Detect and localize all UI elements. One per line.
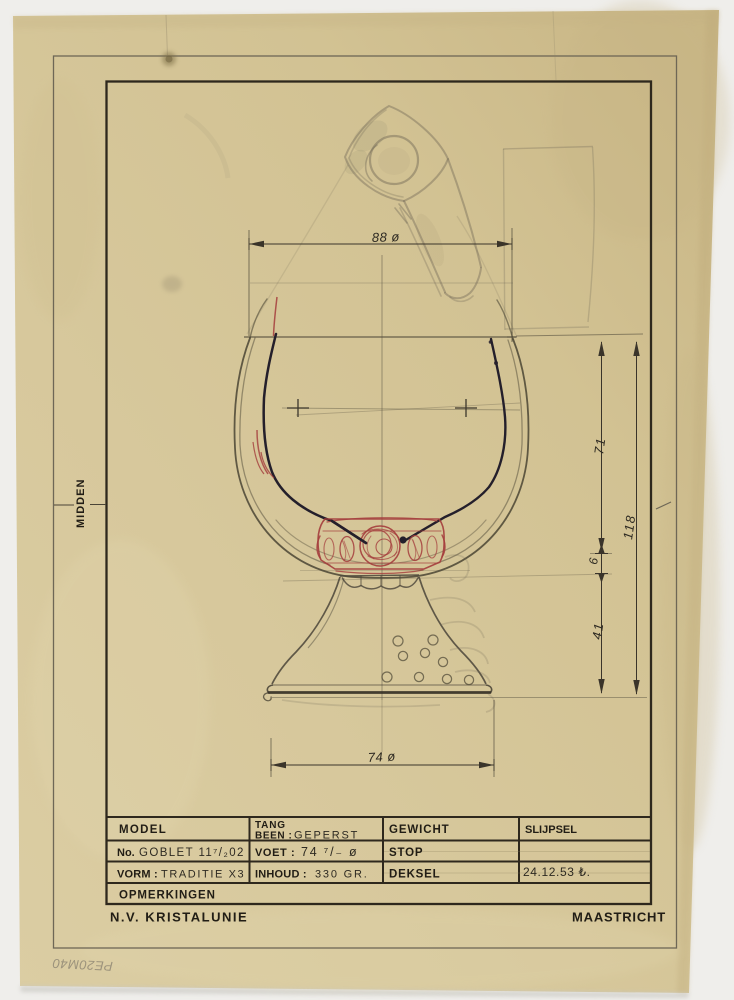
svg-text:GEPERST: GEPERST [294,830,359,842]
svg-text:N.V. KRISTALUNIE: N.V. KRISTALUNIE [110,910,248,925]
svg-text:OPMERKINGEN: OPMERKINGEN [119,890,216,902]
svg-text:VORM :: VORM : [117,869,158,881]
svg-text:88 ø: 88 ø [372,229,401,245]
svg-text:24.12.53 ₺.: 24.12.53 ₺. [523,865,591,879]
svg-text:STOP: STOP [389,847,423,859]
svg-text:BEEN :: BEEN : [255,831,293,842]
svg-text:41: 41 [589,621,606,640]
svg-text:PE20M40: PE20M40 [52,956,114,974]
svg-text:SLIJPSEL: SLIJPSEL [525,824,577,836]
svg-text:71: 71 [591,436,608,455]
svg-text:TRADITIE X3: TRADITIE X3 [161,869,245,881]
svg-text:VOET :: VOET : [255,847,295,859]
svg-text:74 ø: 74 ø [367,749,396,765]
svg-text:74 ⁷/₋ ø: 74 ⁷/₋ ø [301,845,358,859]
svg-text:330 GR.: 330 GR. [315,869,369,881]
svg-text:GEWICHT: GEWICHT [389,824,450,836]
svg-text:MODEL: MODEL [119,824,167,836]
svg-text:MIDDEN: MIDDEN [75,479,87,528]
svg-text:DEKSEL: DEKSEL [389,869,440,881]
svg-text:GOBLET 11⁷/₂02: GOBLET 11⁷/₂02 [139,847,245,859]
svg-text:MAASTRICHT: MAASTRICHT [572,910,666,925]
svg-text:INHOUD :: INHOUD : [255,869,307,881]
svg-text:No.: No. [117,847,135,859]
svg-text:TANG: TANG [255,820,286,831]
